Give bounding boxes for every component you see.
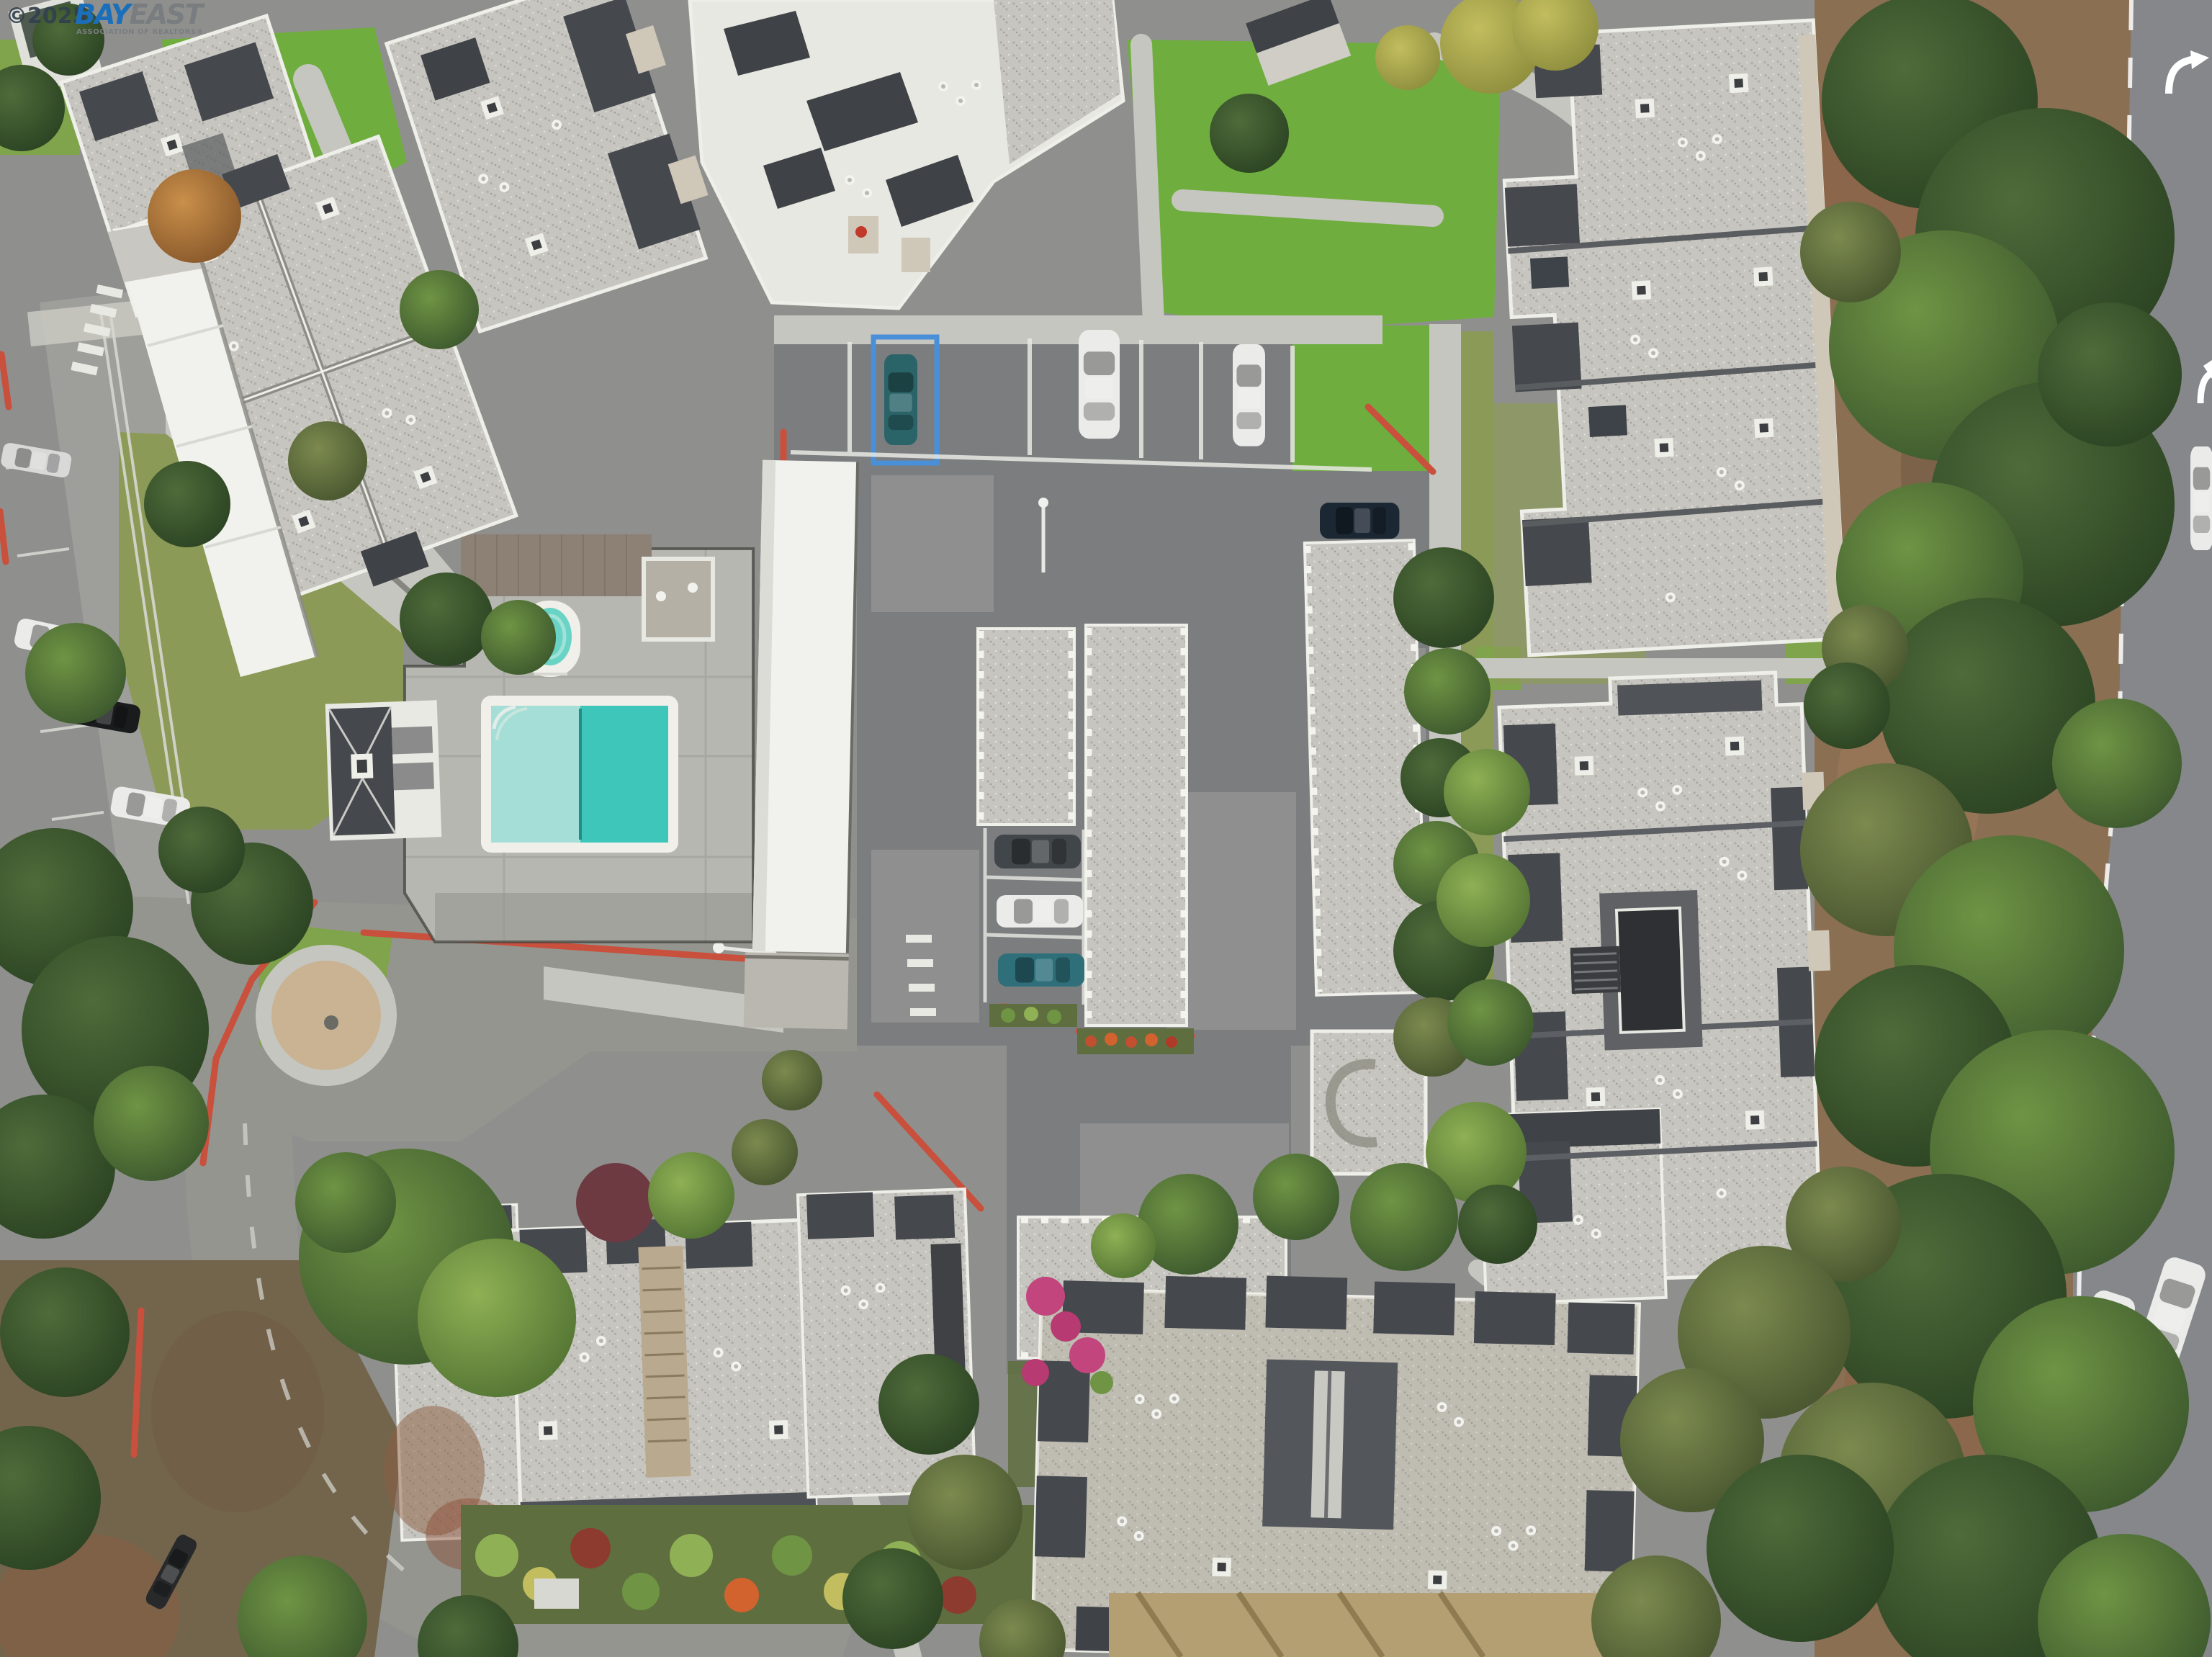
svg-text:BAYEAST: BAYEAST xyxy=(75,0,205,30)
car-white-road-2 xyxy=(2190,446,2212,550)
deck-shadow xyxy=(435,893,753,940)
roof-dot-2 xyxy=(688,583,698,593)
path-lawn-2 xyxy=(1141,45,1154,323)
watermark-brand-primary: BAY xyxy=(75,0,133,30)
suv-gray xyxy=(994,835,1081,868)
aerial-photo-canvas: ©2025 BAYEAST ASSOCIATION OF REALTORS® xyxy=(0,0,2212,1657)
stairwell-j xyxy=(638,1246,691,1478)
carport-row-west xyxy=(978,629,1074,825)
sidewalk-lot-north xyxy=(774,315,1382,344)
aerial-photo: ©2025 BAYEAST ASSOCIATION OF REALTORS® xyxy=(0,0,2212,1657)
dry-grass-k xyxy=(1109,1593,1656,1657)
watermark-brand-secondary: EAST xyxy=(130,0,206,30)
roundabout-drain xyxy=(324,1015,338,1030)
roundabout-pebbles xyxy=(271,961,381,1070)
wood-deck xyxy=(461,534,652,596)
roof-dot-1 xyxy=(656,591,666,601)
car-darkblue xyxy=(1320,503,1399,539)
gray-annex xyxy=(744,952,849,1029)
car-white-mid xyxy=(997,895,1083,928)
car-teal-stall xyxy=(884,354,917,445)
white-roof-building xyxy=(744,460,859,1030)
swimming-pool xyxy=(481,696,678,853)
car-teal-mid xyxy=(998,953,1084,987)
car-white-top xyxy=(1233,344,1265,446)
watermark-subtitle: ASSOCIATION OF REALTORS® xyxy=(76,28,204,36)
lawn-topcenter xyxy=(1127,40,1501,331)
van-white xyxy=(1079,330,1120,439)
pebble-roundabout xyxy=(256,945,397,1086)
pool-house xyxy=(325,700,442,840)
gravel-roof-structure xyxy=(644,559,713,639)
courtyard-opening xyxy=(1617,908,1684,1033)
mulch-patch-2 xyxy=(151,1311,324,1512)
carport-row-center xyxy=(1086,625,1187,1025)
